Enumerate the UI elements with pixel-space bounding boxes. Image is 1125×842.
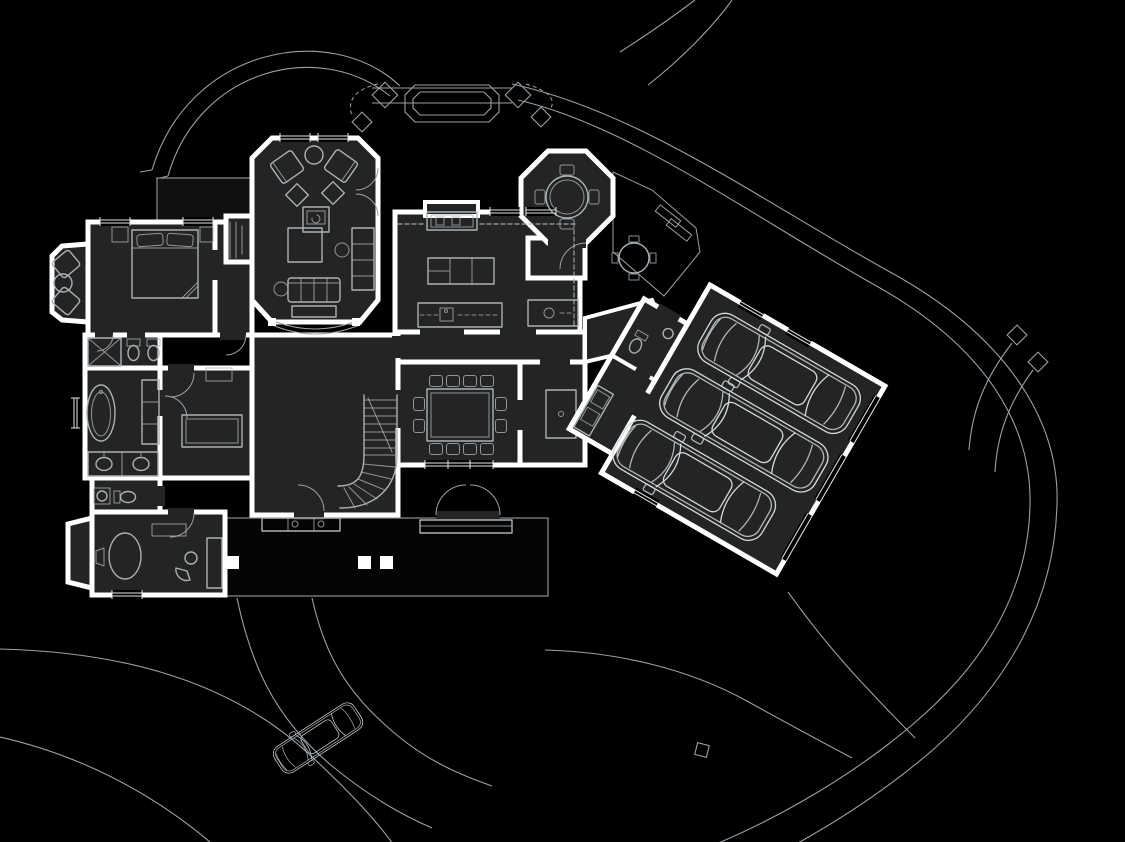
room-master-bedroom <box>88 222 215 335</box>
room-dressing <box>160 368 260 478</box>
room-bedroom-bay <box>52 244 88 322</box>
floor-plan-canvas <box>0 0 1125 842</box>
range-hood-bump <box>425 202 478 216</box>
floor-plan-page <box>0 0 1125 842</box>
room-hall <box>252 335 398 515</box>
terrace <box>218 518 548 596</box>
room-office-bay <box>68 518 92 588</box>
room-powder <box>92 478 160 512</box>
